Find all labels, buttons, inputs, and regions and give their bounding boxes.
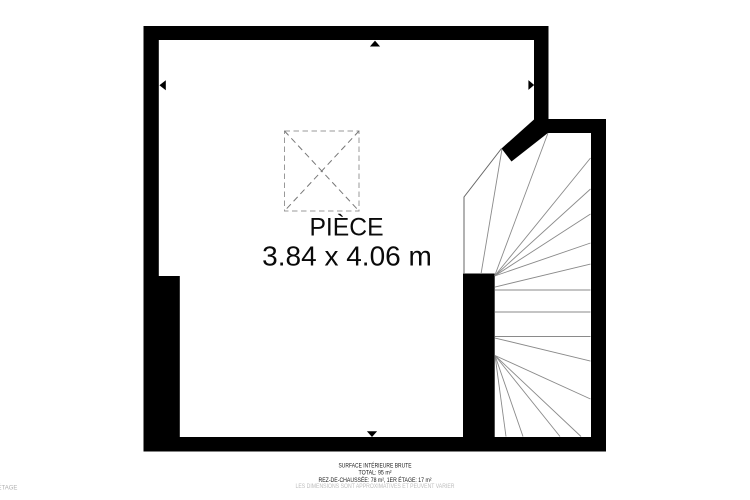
svg-text:TOTAL: 95 m²: TOTAL: 95 m² [359,469,393,476]
svg-text:3.84 x 4.06 m: 3.84 x 4.06 m [262,241,432,272]
svg-text:PIÈCE: PIÈCE [309,214,383,241]
svg-text:SURFACE INTÉRIEURE BRUTE: SURFACE INTÉRIEURE BRUTE [339,461,412,470]
svg-text:LES DIMENSIONS SONT APPROXIMAT: LES DIMENSIONS SONT APPROXIMATIVES ET PE… [296,483,455,490]
svg-text:ÉTAGE: ÉTAGE [0,485,17,492]
